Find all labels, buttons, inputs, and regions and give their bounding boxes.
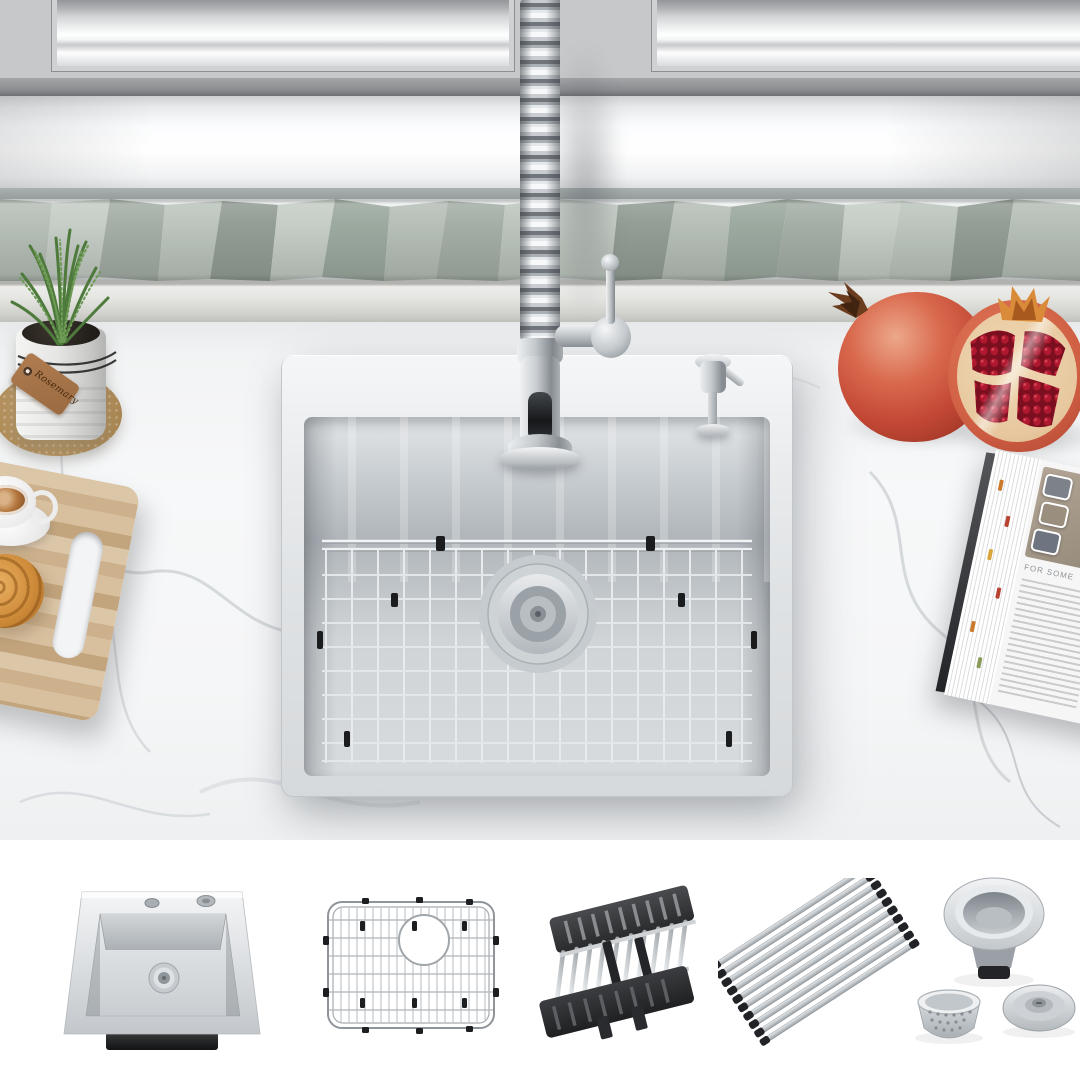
pomegranate-gloss	[957, 310, 1077, 442]
cabinet-door-left	[0, 0, 556, 78]
dispenser-flange	[696, 424, 730, 436]
thumbnail-bottom-grid	[316, 892, 506, 1042]
faucet-spring-coil	[520, 0, 560, 346]
sink-thumbnail-drawing	[48, 866, 276, 1070]
pomegranate-cut-face	[957, 310, 1077, 442]
cabinet-glass-left	[52, 0, 514, 71]
spring-faucet	[495, 0, 645, 486]
rollup-thumbnail-drawing	[718, 878, 923, 1053]
sink-bottom-grid	[316, 535, 758, 771]
product-image: Rosemary	[0, 0, 1080, 1080]
accessory-strip	[0, 840, 1080, 1080]
rosemary-plant	[0, 206, 160, 348]
colander-thumbnail-drawing	[524, 880, 724, 1050]
faucet-base-plate	[500, 447, 580, 469]
grid-thumbnail-drawing	[316, 892, 506, 1042]
kitchen-scene-photo: Rosemary	[0, 0, 1080, 840]
pomegranate-half	[948, 300, 1080, 452]
cutting-board-handle	[50, 529, 106, 661]
thumbnail-rollup-rack	[718, 878, 923, 1053]
faucet-handle-lever	[606, 264, 615, 324]
thumbnail-colander-rack	[524, 880, 724, 1050]
dispenser-body	[700, 361, 726, 393]
drain-thumbnail-drawing	[902, 862, 1080, 1052]
faucet-handle-knob	[601, 254, 619, 271]
cabinet-glass-right	[652, 0, 1080, 71]
pomegranate-calyx	[822, 280, 882, 330]
soap-dispenser	[686, 350, 752, 456]
dispenser-stem	[708, 392, 717, 428]
pomegranate-crown	[996, 284, 1052, 324]
thumbnail-drain-set	[902, 862, 1080, 1052]
thumbnail-drop-in-sink	[48, 866, 276, 1070]
